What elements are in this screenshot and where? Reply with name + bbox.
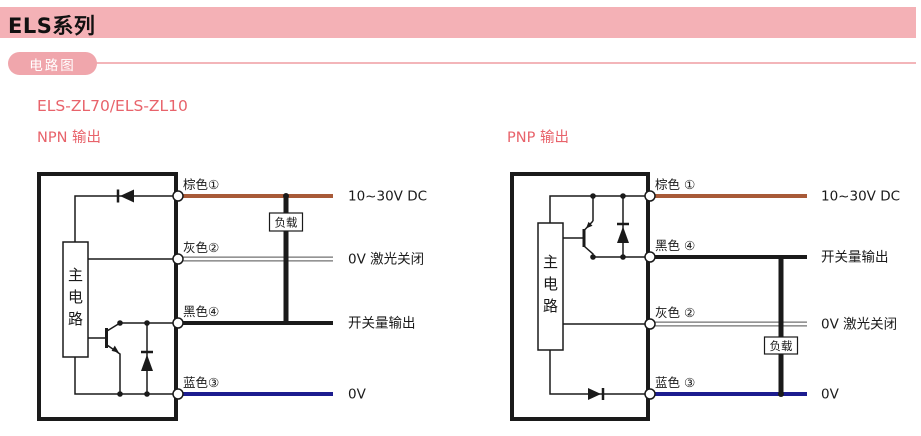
npn-signal-label-0v: 0V — [348, 387, 367, 403]
pnp-signal-label-laser-off: 0V 激光关闭 — [821, 317, 897, 333]
circuit-diagrams-canvas: 负载 棕色① 灰色② 黑色④ 蓝色③ 10~30V DC 0V 激光关闭 开关量… — [0, 0, 921, 436]
junction-dot — [117, 320, 123, 326]
pnp-protection-diode-icon — [588, 388, 601, 400]
terminal-circle — [645, 319, 655, 329]
pnp-internal-wire-bottom — [550, 350, 645, 394]
npn-protection-diode-icon — [120, 190, 134, 203]
pnp-internal-wire-top — [550, 196, 645, 223]
junction-dot — [590, 254, 596, 260]
pnp-main-circuit-label: 主电路 — [538, 225, 563, 349]
pnp-signal-label-power: 10~30V DC — [821, 189, 900, 205]
npn-zener-diode-icon — [141, 355, 153, 372]
pnp-signal-label-output: 开关量输出 — [821, 250, 889, 266]
npn-transistor-emitter-arrow-icon — [112, 346, 119, 353]
junction-dot — [620, 193, 626, 199]
npn-internal-wire-top — [75, 196, 173, 242]
terminal-circle — [173, 191, 183, 201]
terminal-circle — [173, 318, 183, 328]
terminal-circle — [645, 191, 655, 201]
pnp-signal-label-0v: 0V — [821, 387, 840, 403]
pnp-wire-label-blue: 蓝色 ③ — [655, 375, 695, 390]
npn-circuit-diagram: 负载 棕色① 灰色② 黑色④ 蓝色③ 10~30V DC 0V 激光关闭 开关量… — [39, 174, 427, 419]
junction-dot — [283, 193, 289, 199]
npn-load-label: 负载 — [275, 216, 298, 230]
page: ELS系列 电路图 ELS-ZL70/ELS-ZL10 NPN 输出 PNP 输… — [0, 0, 921, 436]
terminal-circle — [645, 252, 655, 262]
junction-dot — [620, 254, 626, 260]
pnp-load-label: 负载 — [770, 339, 793, 353]
pnp-circuit-diagram: 负载 棕色 ① 黑色 ④ 灰色 ② 蓝色 ③ 10~30V DC 开关量输出 0… — [512, 174, 900, 419]
junction-dot — [778, 391, 784, 397]
npn-internal-wire-bottom — [75, 357, 173, 394]
npn-wire-label-gray: 灰色② — [183, 240, 219, 255]
junction-dot — [144, 391, 150, 397]
pnp-wire-label-gray: 灰色 ② — [655, 305, 695, 320]
junction-dot — [117, 391, 123, 397]
pnp-wire-label-black: 黑色 ④ — [655, 238, 695, 253]
npn-wire-label-brown: 棕色① — [183, 177, 219, 192]
npn-sensor-outline-box — [39, 174, 176, 419]
pnp-zener-diode-icon — [617, 227, 629, 244]
npn-wire-label-blue: 蓝色③ — [183, 375, 219, 390]
npn-wire-label-black: 黑色④ — [183, 304, 219, 319]
npn-main-circuit-label: 主电路 — [63, 244, 88, 356]
junction-dot — [144, 320, 150, 326]
pnp-sensor-outline-box — [512, 174, 648, 419]
terminal-circle — [173, 254, 183, 264]
npn-signal-label-output: 开关量输出 — [348, 316, 416, 332]
terminal-circle — [645, 389, 655, 399]
pnp-wire-label-brown: 棕色 ① — [655, 177, 695, 192]
npn-signal-label-laser-off: 0V 激光关闭 — [348, 252, 424, 268]
terminal-circle — [173, 389, 183, 399]
junction-dot — [590, 193, 596, 199]
npn-signal-label-power: 10~30V DC — [348, 189, 427, 205]
